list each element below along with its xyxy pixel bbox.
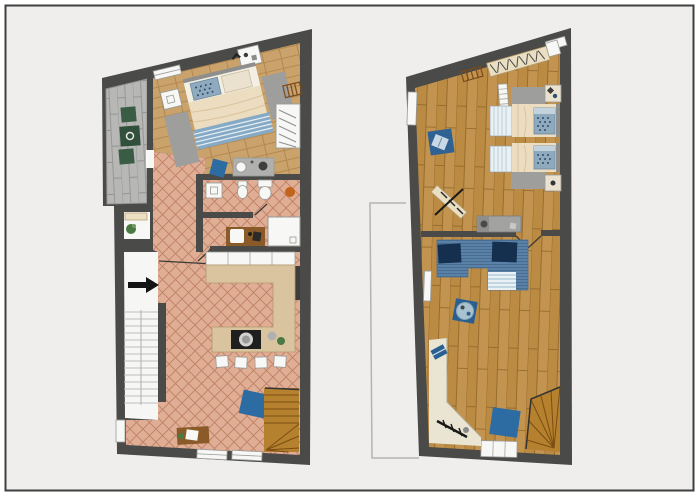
side-window [116, 420, 125, 442]
washbasin-unit [206, 183, 222, 198]
nightstand-left [160, 89, 181, 110]
single-bed-2 [490, 143, 560, 172]
sofa-cushion-2 [492, 242, 518, 263]
living-blue-rug [489, 407, 520, 438]
sideboard [477, 216, 521, 232]
left-floor-plan [102, 29, 312, 465]
garden-table [119, 125, 140, 146]
rug-bed-2 [511, 172, 545, 189]
plant-closet [124, 211, 150, 240]
headboard-2 [556, 143, 560, 172]
reading-rug [427, 128, 454, 155]
living-window-1 [197, 449, 227, 460]
toilet [258, 180, 272, 200]
kitchen-plant [277, 337, 285, 345]
bowl [268, 332, 277, 341]
bathroom-vanity [226, 227, 265, 246]
left-wall-window [407, 92, 417, 125]
upper-cabinets [206, 252, 295, 265]
nightstand-2 [545, 175, 561, 191]
pouf-with-tray [452, 298, 477, 323]
bedroom-washbasin-counter [233, 158, 274, 176]
living-shelf [423, 271, 431, 301]
floor-plan-canvas [0, 0, 700, 500]
headboard-1 [556, 104, 560, 137]
sled-detail [463, 427, 469, 433]
bottom-door [481, 441, 517, 458]
entry-staircase [124, 252, 158, 420]
nightstand-1 [545, 85, 561, 102]
bidet [238, 181, 248, 199]
winder-staircase [264, 388, 299, 452]
rug-bed-1 [511, 87, 545, 104]
desk [177, 426, 210, 445]
terrace-door [146, 150, 154, 168]
wardrobe [276, 104, 300, 148]
sofa-cushion-1 [438, 243, 462, 263]
single-bed-1 [490, 104, 560, 137]
orange-stool [285, 187, 295, 197]
living-window-2 [232, 450, 262, 461]
shower [268, 217, 300, 246]
floor-plan-image [0, 0, 700, 500]
